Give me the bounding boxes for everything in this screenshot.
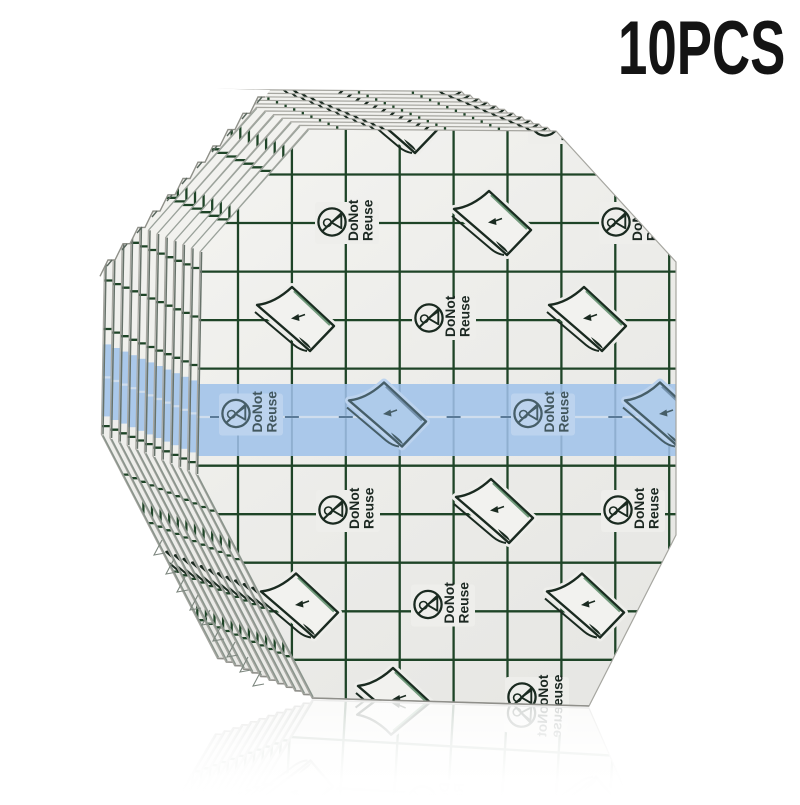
svg-text:10PCS: 10PCS	[618, 5, 785, 90]
